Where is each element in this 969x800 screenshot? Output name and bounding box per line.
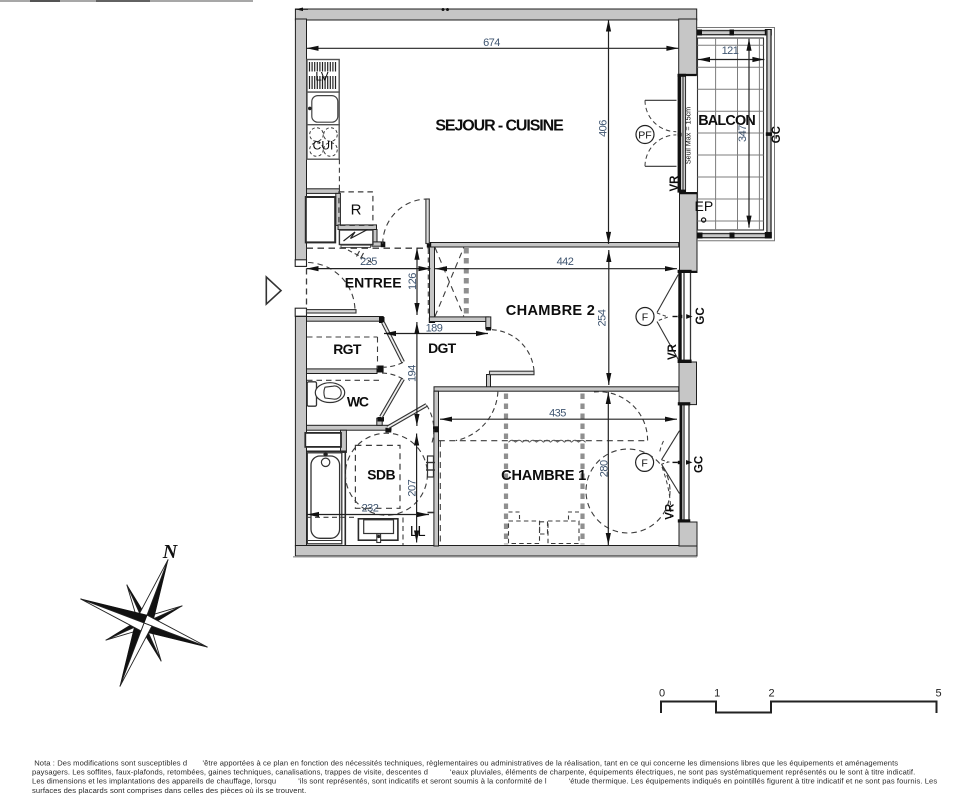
svg-text:VR: VR bbox=[669, 175, 681, 192]
svg-text:347: 347 bbox=[737, 125, 749, 142]
svg-text:Seuil Max = 15cm: Seuil Max = 15cm bbox=[684, 107, 693, 164]
svg-text:DGT: DGT bbox=[428, 340, 457, 356]
svg-text:194: 194 bbox=[407, 365, 419, 382]
svg-text:121: 121 bbox=[722, 45, 739, 57]
svg-text:LV: LV bbox=[315, 71, 329, 83]
svg-text:VR: VR bbox=[665, 503, 677, 520]
svg-text:CUI: CUI bbox=[313, 139, 334, 153]
svg-text:CHAMBRE 2: CHAMBRE 2 bbox=[506, 303, 595, 319]
svg-text:PF: PF bbox=[638, 130, 651, 142]
svg-text:Les dimensions et les implanta: Les dimensions et les implantations des … bbox=[32, 777, 937, 786]
svg-text:RGT: RGT bbox=[333, 341, 362, 357]
svg-text:Nota : Des modifications sont: Nota : Des modifications sont susceptibl… bbox=[32, 759, 898, 768]
svg-text:674: 674 bbox=[483, 37, 500, 49]
svg-text:GC: GC bbox=[694, 456, 706, 473]
svg-text:435: 435 bbox=[549, 408, 566, 420]
svg-text:0: 0 bbox=[659, 688, 665, 700]
svg-text:EP: EP bbox=[695, 198, 714, 214]
svg-text:254: 254 bbox=[597, 309, 609, 326]
svg-text:1: 1 bbox=[714, 688, 720, 700]
svg-text:CHAMBRE 1: CHAMBRE 1 bbox=[501, 468, 586, 484]
svg-text:126: 126 bbox=[407, 273, 419, 290]
svg-text:N: N bbox=[162, 541, 179, 563]
svg-text:280: 280 bbox=[599, 460, 611, 477]
svg-text:F: F bbox=[642, 312, 648, 324]
svg-text:406: 406 bbox=[597, 120, 609, 137]
svg-text:SDB: SDB bbox=[367, 468, 395, 483]
svg-text:VR: VR bbox=[667, 343, 679, 360]
svg-text:WC: WC bbox=[347, 394, 369, 410]
svg-text:5: 5 bbox=[935, 688, 941, 700]
svg-text:ENTREE: ENTREE bbox=[345, 275, 402, 291]
svg-text:189: 189 bbox=[426, 323, 443, 335]
svg-text:232: 232 bbox=[362, 503, 379, 515]
svg-text:R: R bbox=[351, 202, 362, 219]
svg-text:surfaces des placards sont com: surfaces des placards sont comprises dan… bbox=[32, 786, 306, 795]
svg-text:207: 207 bbox=[407, 479, 419, 496]
svg-text:GC: GC bbox=[695, 307, 707, 324]
svg-text:225: 225 bbox=[360, 256, 377, 268]
svg-text:442: 442 bbox=[557, 256, 574, 268]
svg-text:F: F bbox=[641, 458, 647, 470]
svg-text:paysagers. Les soffites, faux-: paysagers. Les soffites, faux-plafonds, … bbox=[32, 768, 915, 777]
svg-text:GC: GC bbox=[771, 126, 783, 143]
svg-text:2: 2 bbox=[769, 688, 775, 700]
svg-text:SEJOUR - CUISINE: SEJOUR - CUISINE bbox=[435, 118, 564, 135]
